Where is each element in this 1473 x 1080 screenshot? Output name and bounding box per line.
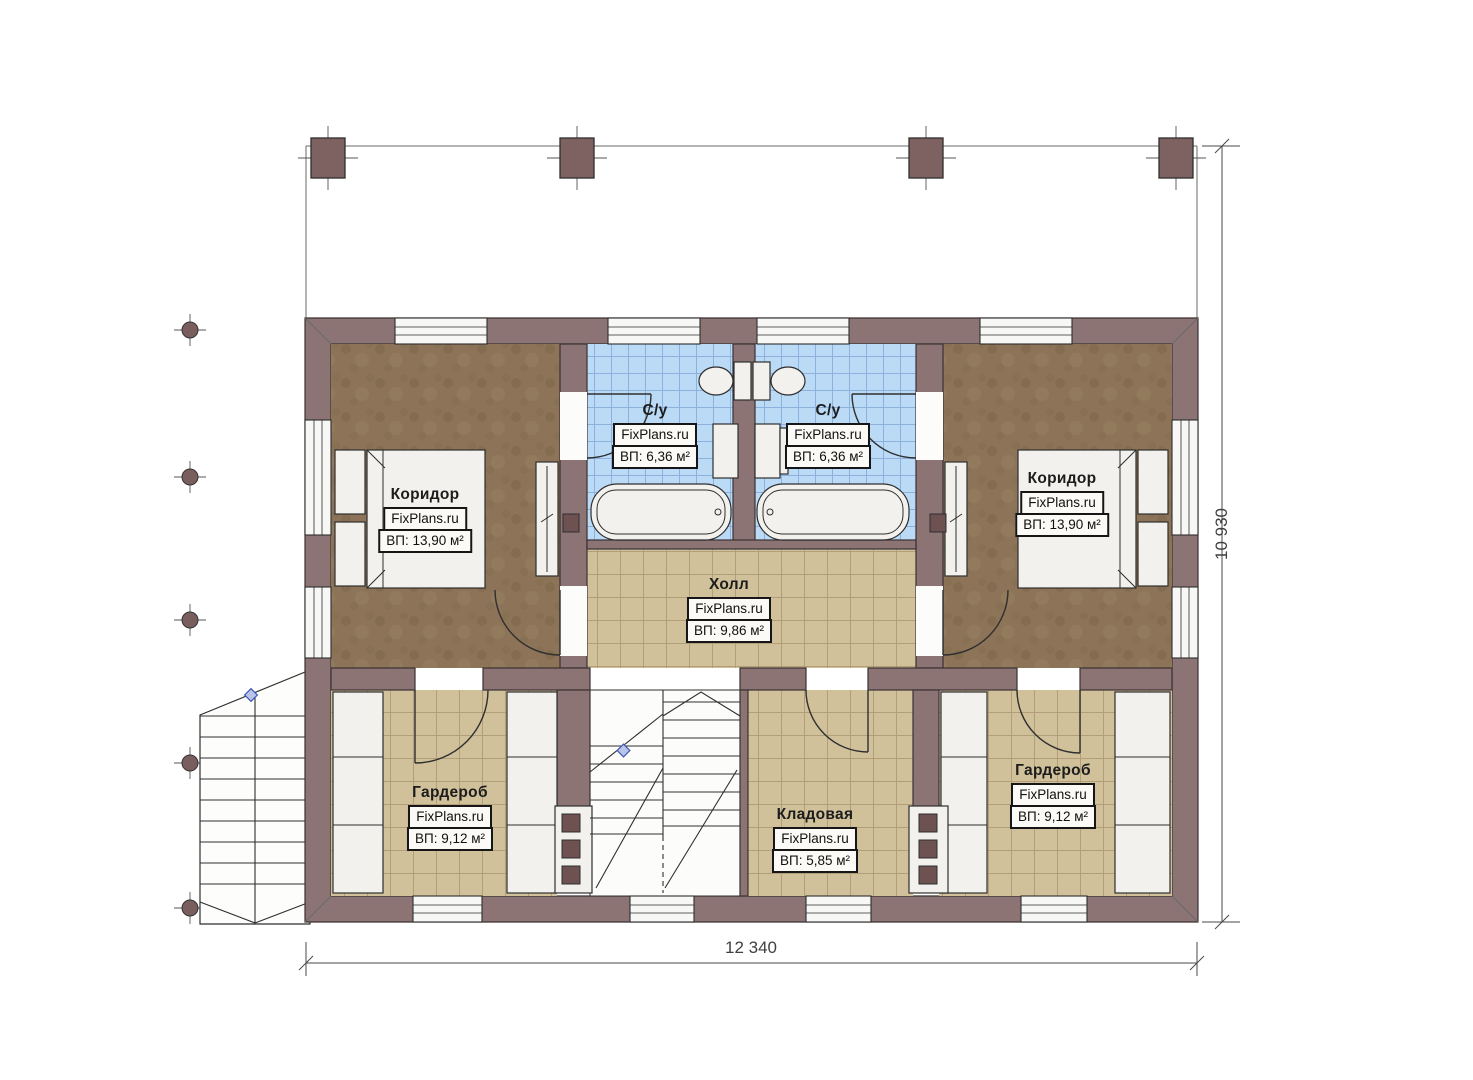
room-name: Гардероб	[1015, 762, 1091, 780]
washbasin-right	[755, 424, 788, 478]
room-name: Кладовая	[777, 806, 854, 824]
room-label-hall: Холл FixPlans.ru ВП: 9,86 м²	[686, 576, 772, 643]
room-label-bathroom-left: С/у FixPlans.ru ВП: 6,36 м²	[612, 402, 698, 469]
dimension-height: 10 930	[1212, 508, 1232, 560]
brand-box: FixPlans.ru	[786, 423, 870, 447]
area-box: ВП: 9,12 м²	[1010, 805, 1096, 829]
room-label-bedroom-left: Коридор FixPlans.ru ВП: 13,90 м²	[378, 486, 472, 553]
floor-plan-drawing	[0, 0, 1473, 1080]
area-box: ВП: 6,36 м²	[612, 445, 698, 469]
structural-columns	[298, 126, 1206, 190]
floor-stairwell	[590, 690, 740, 896]
brand-box: FixPlans.ru	[773, 827, 857, 851]
area-box: ВП: 9,86 м²	[686, 619, 772, 643]
area-box: ВП: 13,90 м²	[1015, 513, 1109, 537]
room-name: С/у	[642, 402, 667, 420]
brand-box: FixPlans.ru	[613, 423, 697, 447]
wall-duct-right	[930, 514, 946, 532]
room-label-bathroom-right: С/у FixPlans.ru ВП: 6,36 м²	[785, 402, 871, 469]
brand-box: FixPlans.ru	[1020, 491, 1104, 515]
room-label-wardrobe-left: Гардероб FixPlans.ru ВП: 9,12 м²	[407, 784, 493, 851]
room-label-bedroom-right: Коридор FixPlans.ru ВП: 13,90 м²	[1015, 470, 1109, 537]
area-box: ВП: 5,85 м²	[772, 849, 858, 873]
brand-box: FixPlans.ru	[383, 507, 467, 531]
room-name: Гардероб	[412, 784, 488, 802]
tall-cabinet-left	[536, 462, 558, 576]
bathtub-left	[591, 484, 731, 540]
tall-cabinet-right	[945, 462, 967, 576]
wall-duct-left	[563, 514, 579, 532]
brand-box: FixPlans.ru	[408, 805, 492, 829]
room-name: С/у	[815, 402, 840, 420]
brand-box: FixPlans.ru	[687, 597, 771, 621]
room-label-storage: Кладовая FixPlans.ru ВП: 5,85 м²	[772, 806, 858, 873]
terrace-outline	[306, 146, 1197, 318]
room-name: Холл	[709, 576, 749, 594]
room-name: Коридор	[1028, 470, 1097, 488]
bathtub-right	[757, 484, 909, 540]
dimension-width: 12 340	[725, 938, 777, 958]
washbasin-left	[713, 424, 738, 478]
room-label-wardrobe-right: Гардероб FixPlans.ru ВП: 9,12 м²	[1010, 762, 1096, 829]
room-name: Коридор	[391, 486, 460, 504]
duct-shaft-right	[909, 806, 948, 893]
area-box: ВП: 9,12 м²	[407, 827, 493, 851]
duct-shaft-left	[555, 806, 592, 893]
brand-box: FixPlans.ru	[1011, 783, 1095, 807]
area-box: ВП: 13,90 м²	[378, 529, 472, 553]
exterior-stair	[200, 670, 310, 924]
floor-plan-page: С/у FixPlans.ru ВП: 6,36 м² С/у FixPlans…	[0, 0, 1473, 1080]
area-box: ВП: 6,36 м²	[785, 445, 871, 469]
